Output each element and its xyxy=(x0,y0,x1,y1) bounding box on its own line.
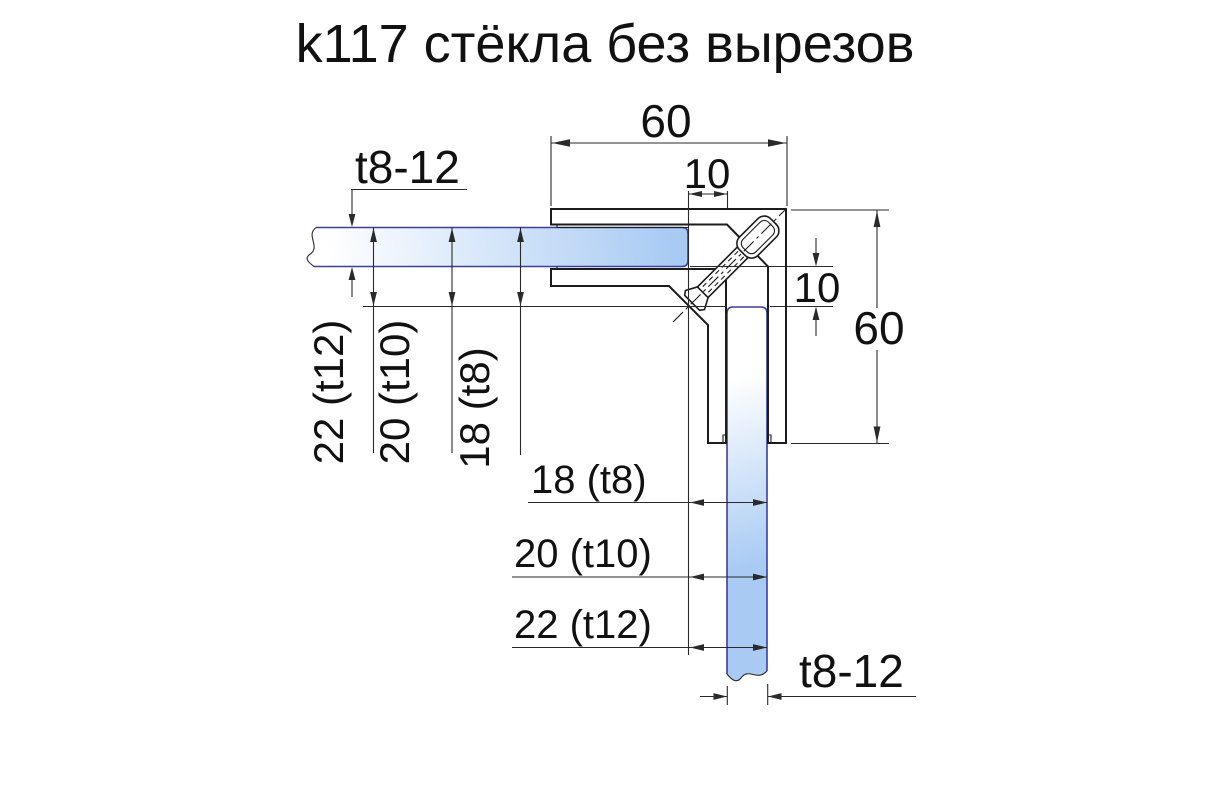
glass-horizontal xyxy=(307,228,688,267)
dim-thickness-bottom-label: t8-12 xyxy=(799,645,904,697)
glass-vertical xyxy=(727,307,767,681)
dim-left-offset-label-t12: 22 (t12) xyxy=(305,320,352,465)
page-title: k117 стёкла без вырезов xyxy=(296,14,915,74)
dim-left-offset-label-t10: 20 (t10) xyxy=(371,320,418,465)
dim-bottom-offset-label-t12: 22 (t12) xyxy=(514,603,652,647)
technical-drawing-page: k117 стёкла без вырезов 60 10 t8-12 22 (… xyxy=(0,0,1205,800)
glass-vertical-body xyxy=(727,307,767,681)
dim-right-gap-label: 10 xyxy=(794,264,841,311)
technical-drawing: k117 стёкла без вырезов 60 10 t8-12 22 (… xyxy=(0,0,1205,800)
glass-horizontal-body xyxy=(307,228,688,267)
dim-left-offset-label-t8: 18 (t8) xyxy=(451,347,498,468)
dim-top-width-label: 60 xyxy=(640,95,691,147)
dim-right-height-label: 60 xyxy=(853,302,904,354)
dim-bottom-offset-label-t8: 18 (t8) xyxy=(531,458,647,502)
dim-bottom-offset-label-t10: 20 (t10) xyxy=(514,532,652,576)
dim-top-gap-label: 10 xyxy=(684,150,731,197)
dim-thickness-top-label: t8-12 xyxy=(355,141,460,193)
